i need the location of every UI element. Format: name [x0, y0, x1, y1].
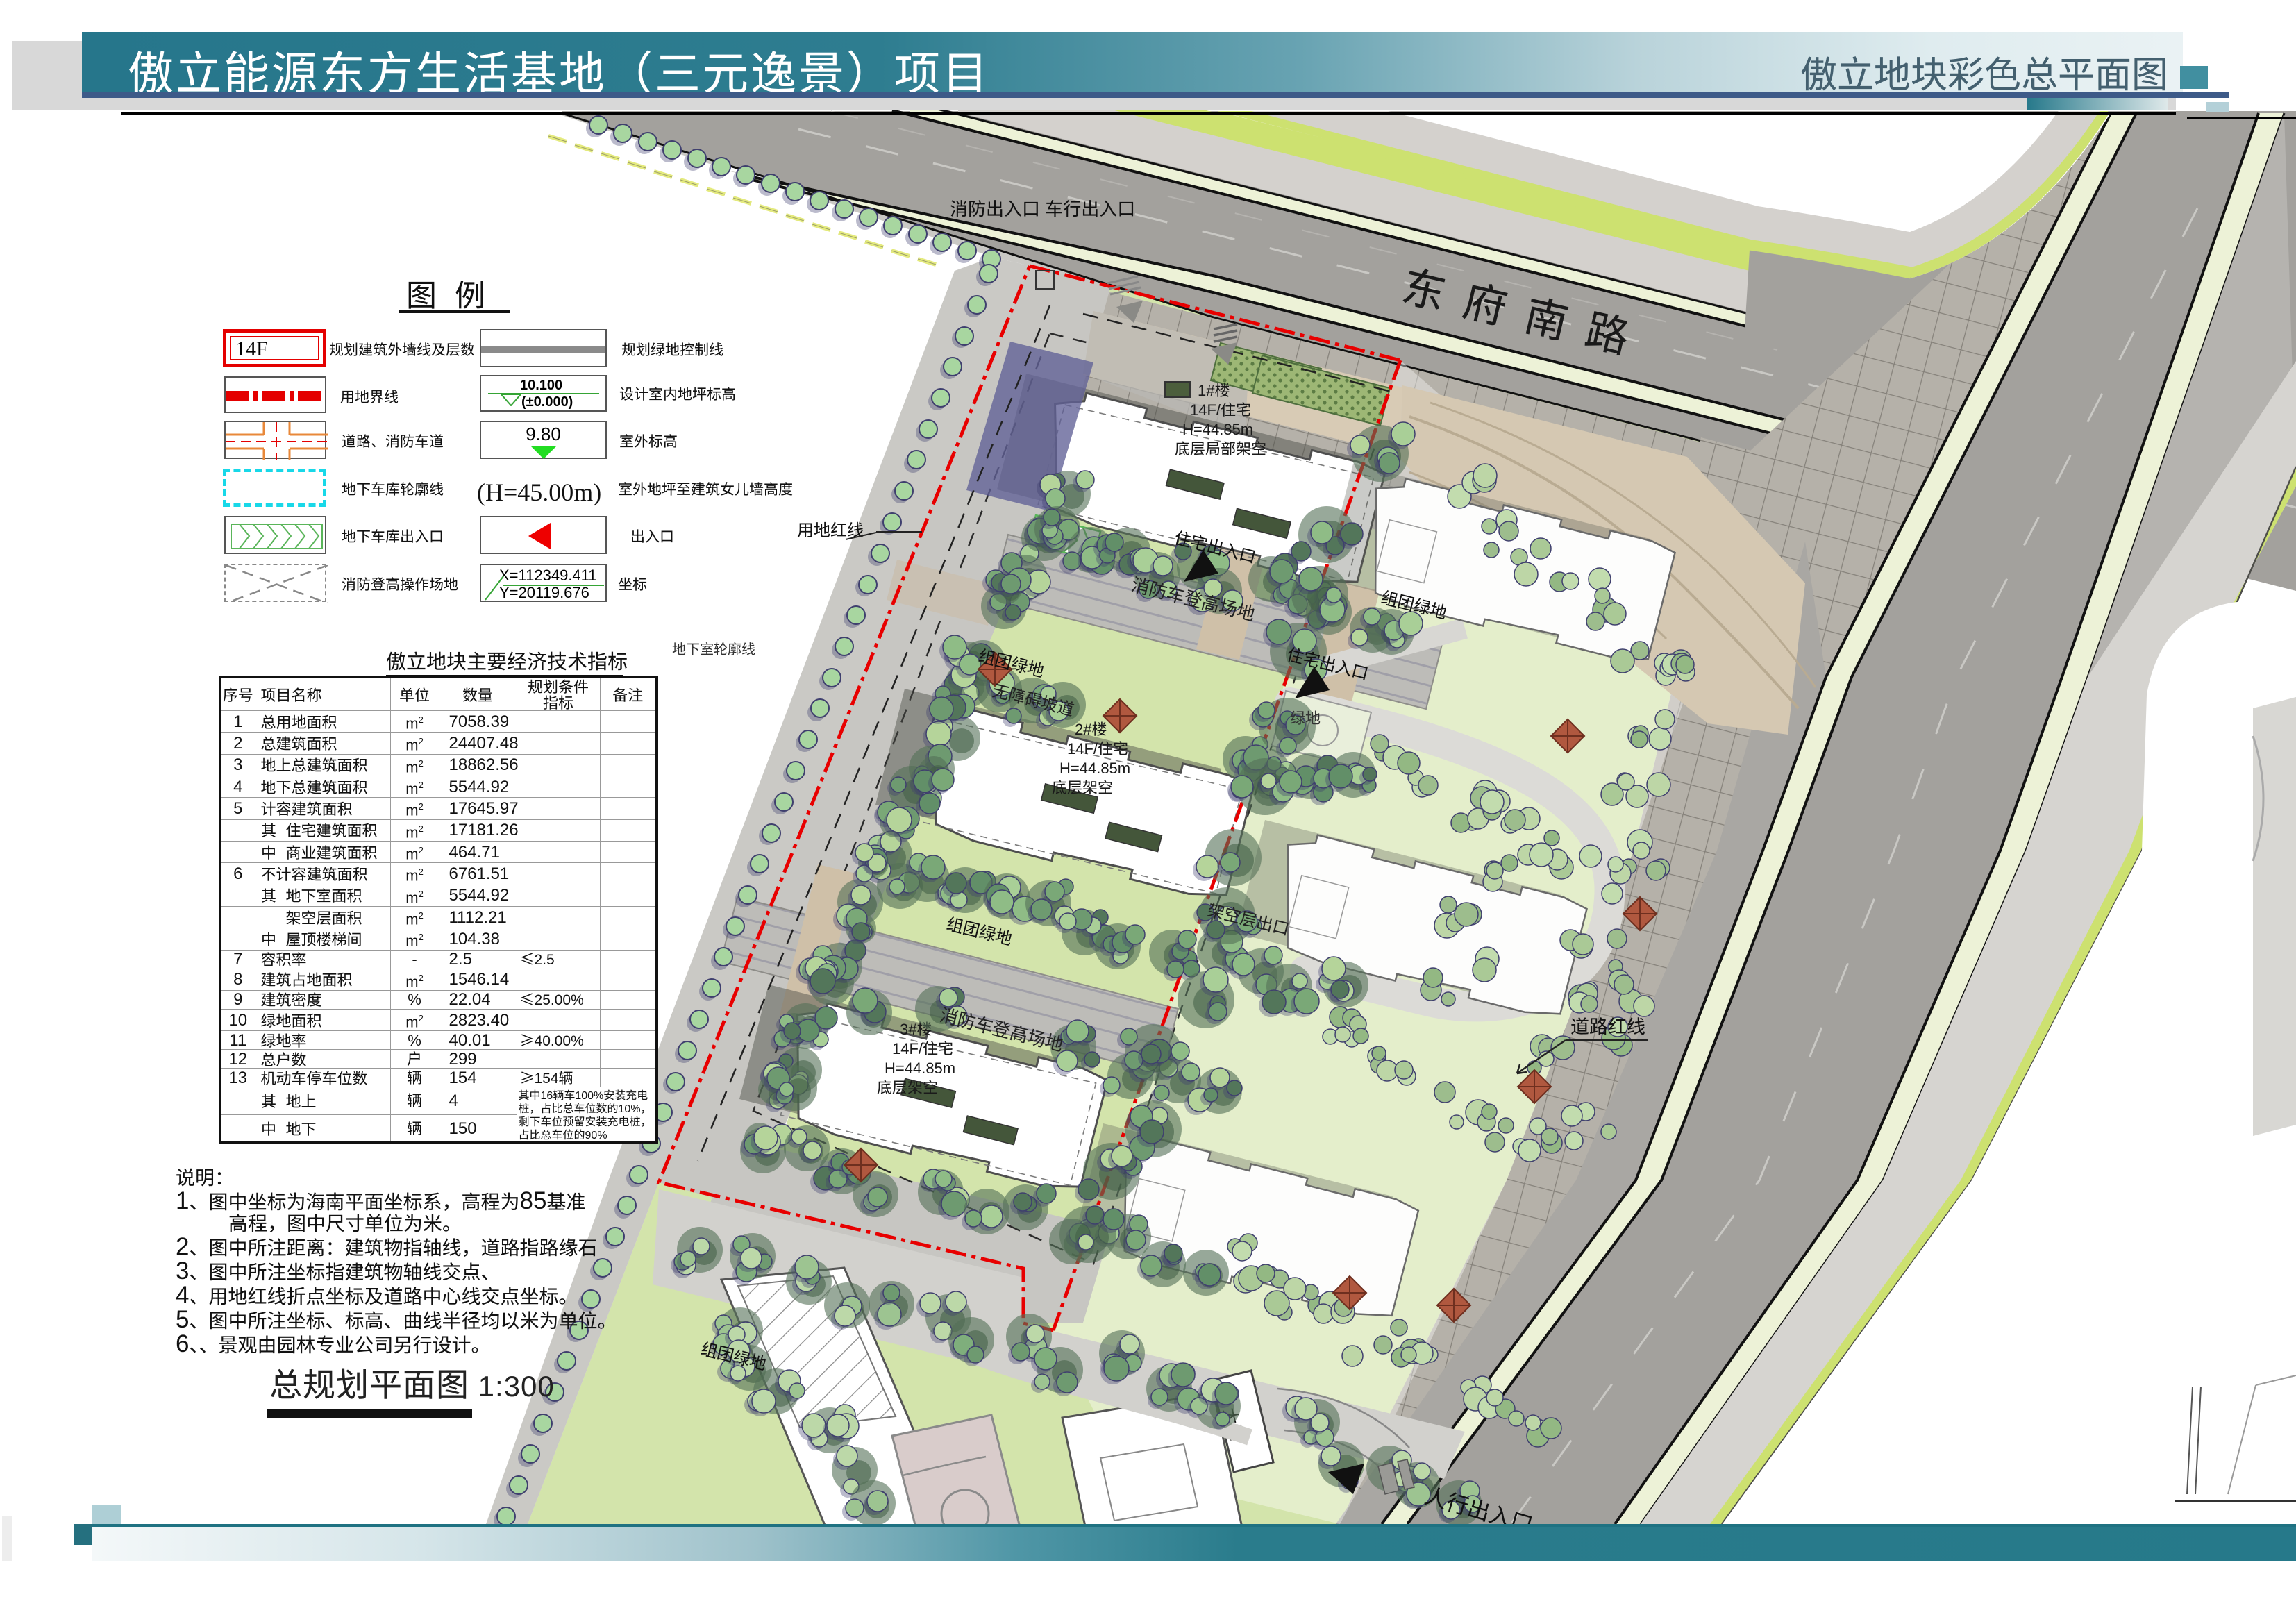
- svg-text:道路红线: 道路红线: [1570, 1012, 1645, 1039]
- svg-text:底层架空: 底层架空: [877, 1075, 938, 1098]
- svg-text:底层局部架空: 底层局部架空: [1175, 437, 1266, 459]
- svg-text:地下室轮廓线: 地下室轮廓线: [672, 638, 755, 658]
- svg-text:底层架空: 底层架空: [1052, 776, 1113, 798]
- svg-text:绿地: 绿地: [1290, 706, 1321, 728]
- svg-text:消防出入口 车行出入口: 消防出入口 车行出入口: [950, 195, 1135, 221]
